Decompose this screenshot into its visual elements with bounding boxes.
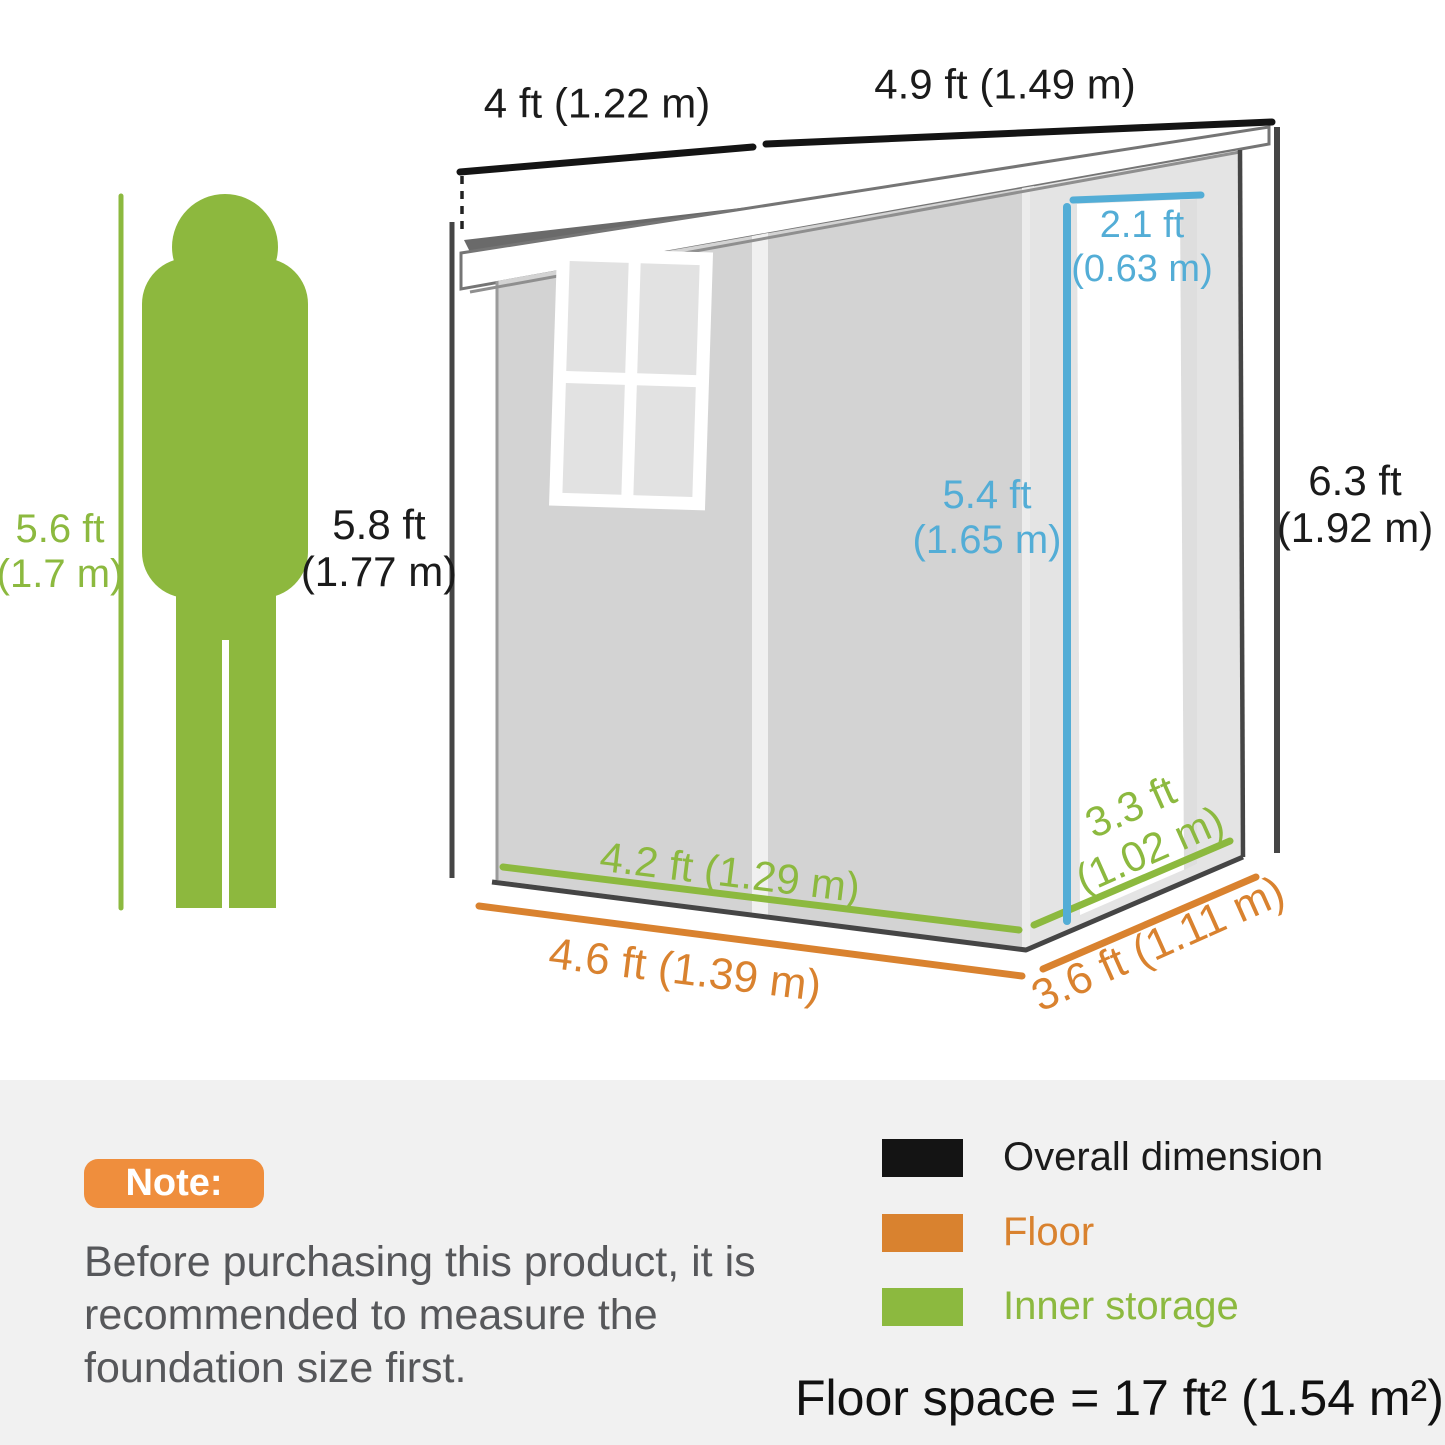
person-height-meters: (1.77 m)	[301, 548, 457, 595]
door-width-label: 2.1 ft (0.63 m)	[1071, 203, 1212, 291]
door-width-meters: (0.63 m)	[1071, 247, 1212, 291]
overall-height-feet: 6.3 ft	[1277, 457, 1433, 504]
window-pane	[562, 383, 624, 495]
floor-swatch	[882, 1214, 963, 1252]
roof-depth-label: 4 ft (1.22 m)	[484, 79, 710, 126]
person-silhouette	[142, 194, 308, 908]
person-height-metric-meters: (1.7 m)	[0, 552, 123, 597]
roof-width-label: 4.9 ft (1.49 m)	[874, 60, 1135, 107]
window-pane	[566, 261, 628, 373]
overall-dimension-swatch	[882, 1139, 963, 1177]
info-panel: Note: Before purchasing this product, it…	[0, 1080, 1445, 1445]
legend-item-inner-storage: Inner storage	[882, 1284, 1239, 1329]
person-height-metric-label: 5.6 ft (1.7 m)	[0, 507, 123, 597]
note-badge-label: Note:	[125, 1162, 222, 1205]
legend-item-overall: Overall dimension	[882, 1135, 1323, 1180]
legend-item-floor: Floor	[882, 1210, 1094, 1255]
inner-storage-swatch	[882, 1288, 963, 1326]
floor-space-summary: Floor space = 17 ft² (1.54 m²)	[795, 1372, 1425, 1424]
window-pane	[637, 263, 699, 375]
person-height-feet: 5.8 ft	[301, 501, 457, 548]
person-torso	[142, 258, 308, 598]
note-text: Before purchasing this product, it is re…	[84, 1236, 774, 1395]
door-width-feet: 2.1 ft	[1071, 203, 1212, 247]
shed-dimension-diagram: 4 ft (1.22 m) 4.9 ft (1.49 m) 2.1 ft (0.…	[0, 0, 1445, 1445]
note-badge: Note:	[84, 1159, 264, 1208]
front-wall-seam	[752, 233, 768, 915]
door-height-meters: (1.65 m)	[913, 518, 1062, 563]
person-height-metric-feet: 5.6 ft	[0, 507, 123, 552]
overall-height-label: 6.3 ft (1.92 m)	[1277, 457, 1433, 551]
door-height-feet: 5.4 ft	[913, 473, 1062, 518]
side-wall-right-edge	[1240, 150, 1243, 857]
window-pane	[633, 385, 695, 497]
door-width-line	[1073, 195, 1201, 200]
person-height-label: 5.8 ft (1.77 m)	[301, 501, 457, 595]
floor-label: Floor	[1003, 1210, 1094, 1255]
roof-depth-dimension-line	[460, 147, 753, 172]
window	[549, 248, 713, 511]
inner-storage-label: Inner storage	[1003, 1284, 1239, 1329]
overall-height-meters: (1.92 m)	[1277, 504, 1433, 551]
door-height-label: 5.4 ft (1.65 m)	[913, 473, 1062, 563]
overall-dimension-label: Overall dimension	[1003, 1135, 1323, 1180]
person-leg-divider	[222, 640, 229, 908]
